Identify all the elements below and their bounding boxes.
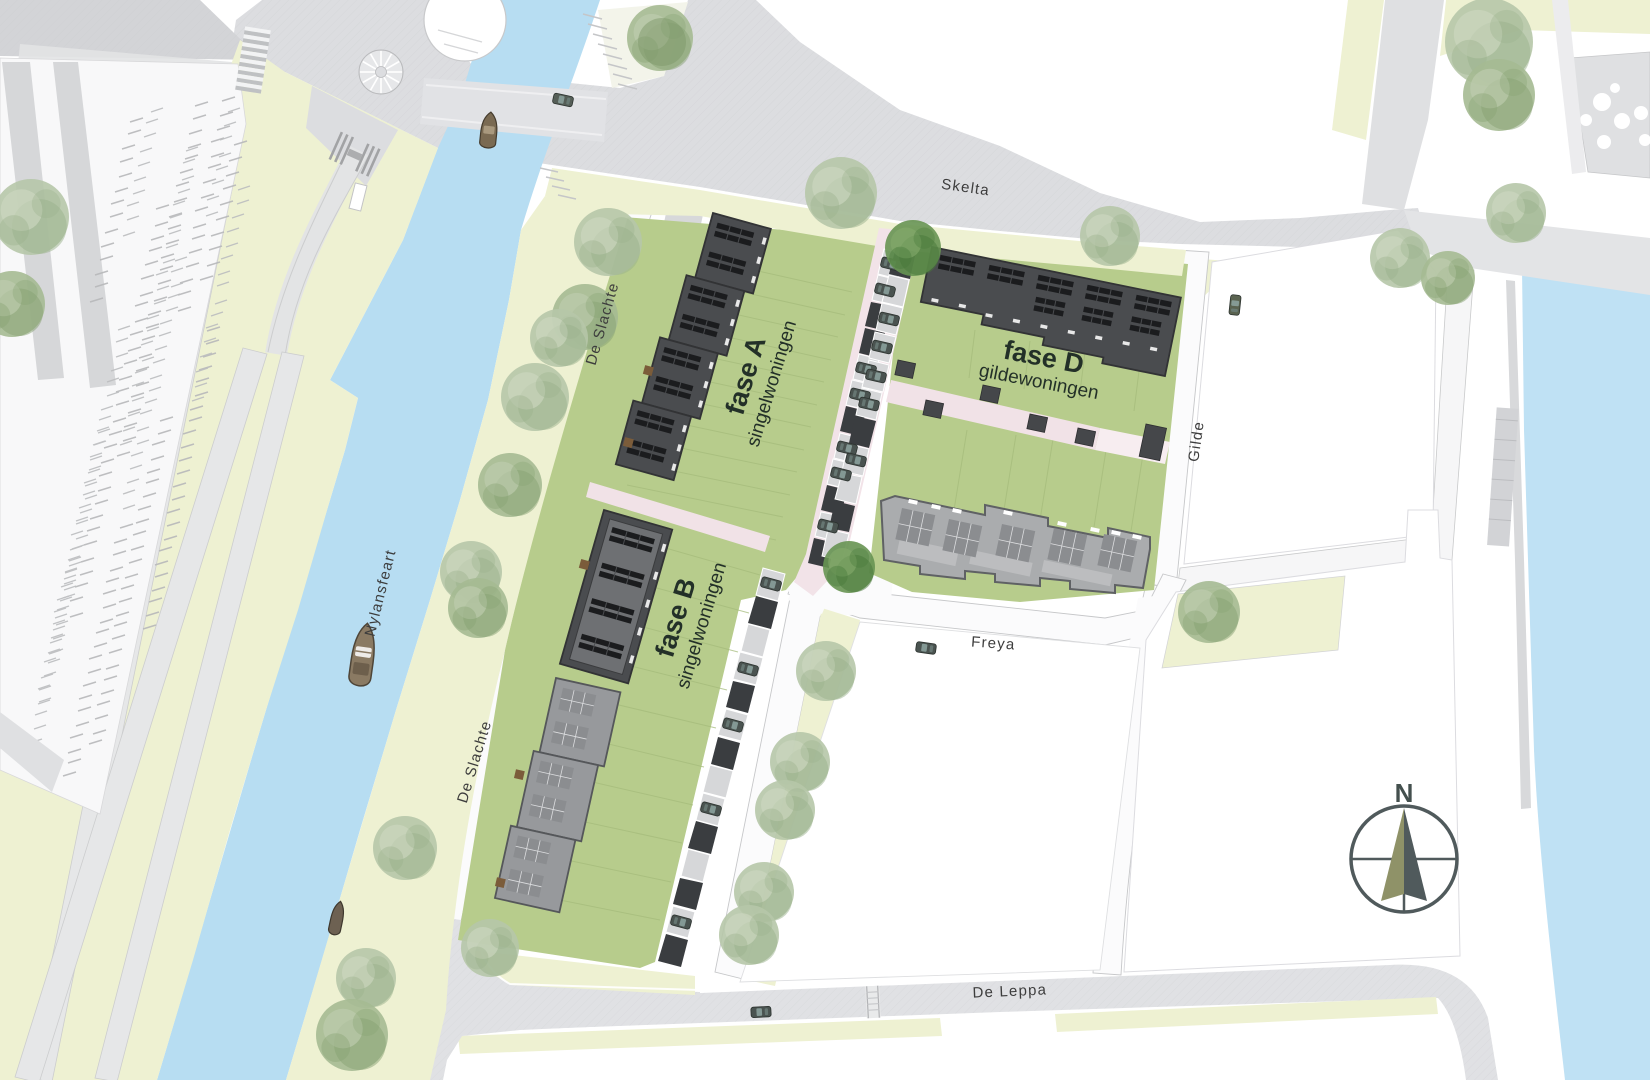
svg-text:Freya: Freya [971,633,1016,653]
svg-text:N: N [1395,778,1414,808]
svg-text:De Leppa: De Leppa [972,981,1047,1001]
